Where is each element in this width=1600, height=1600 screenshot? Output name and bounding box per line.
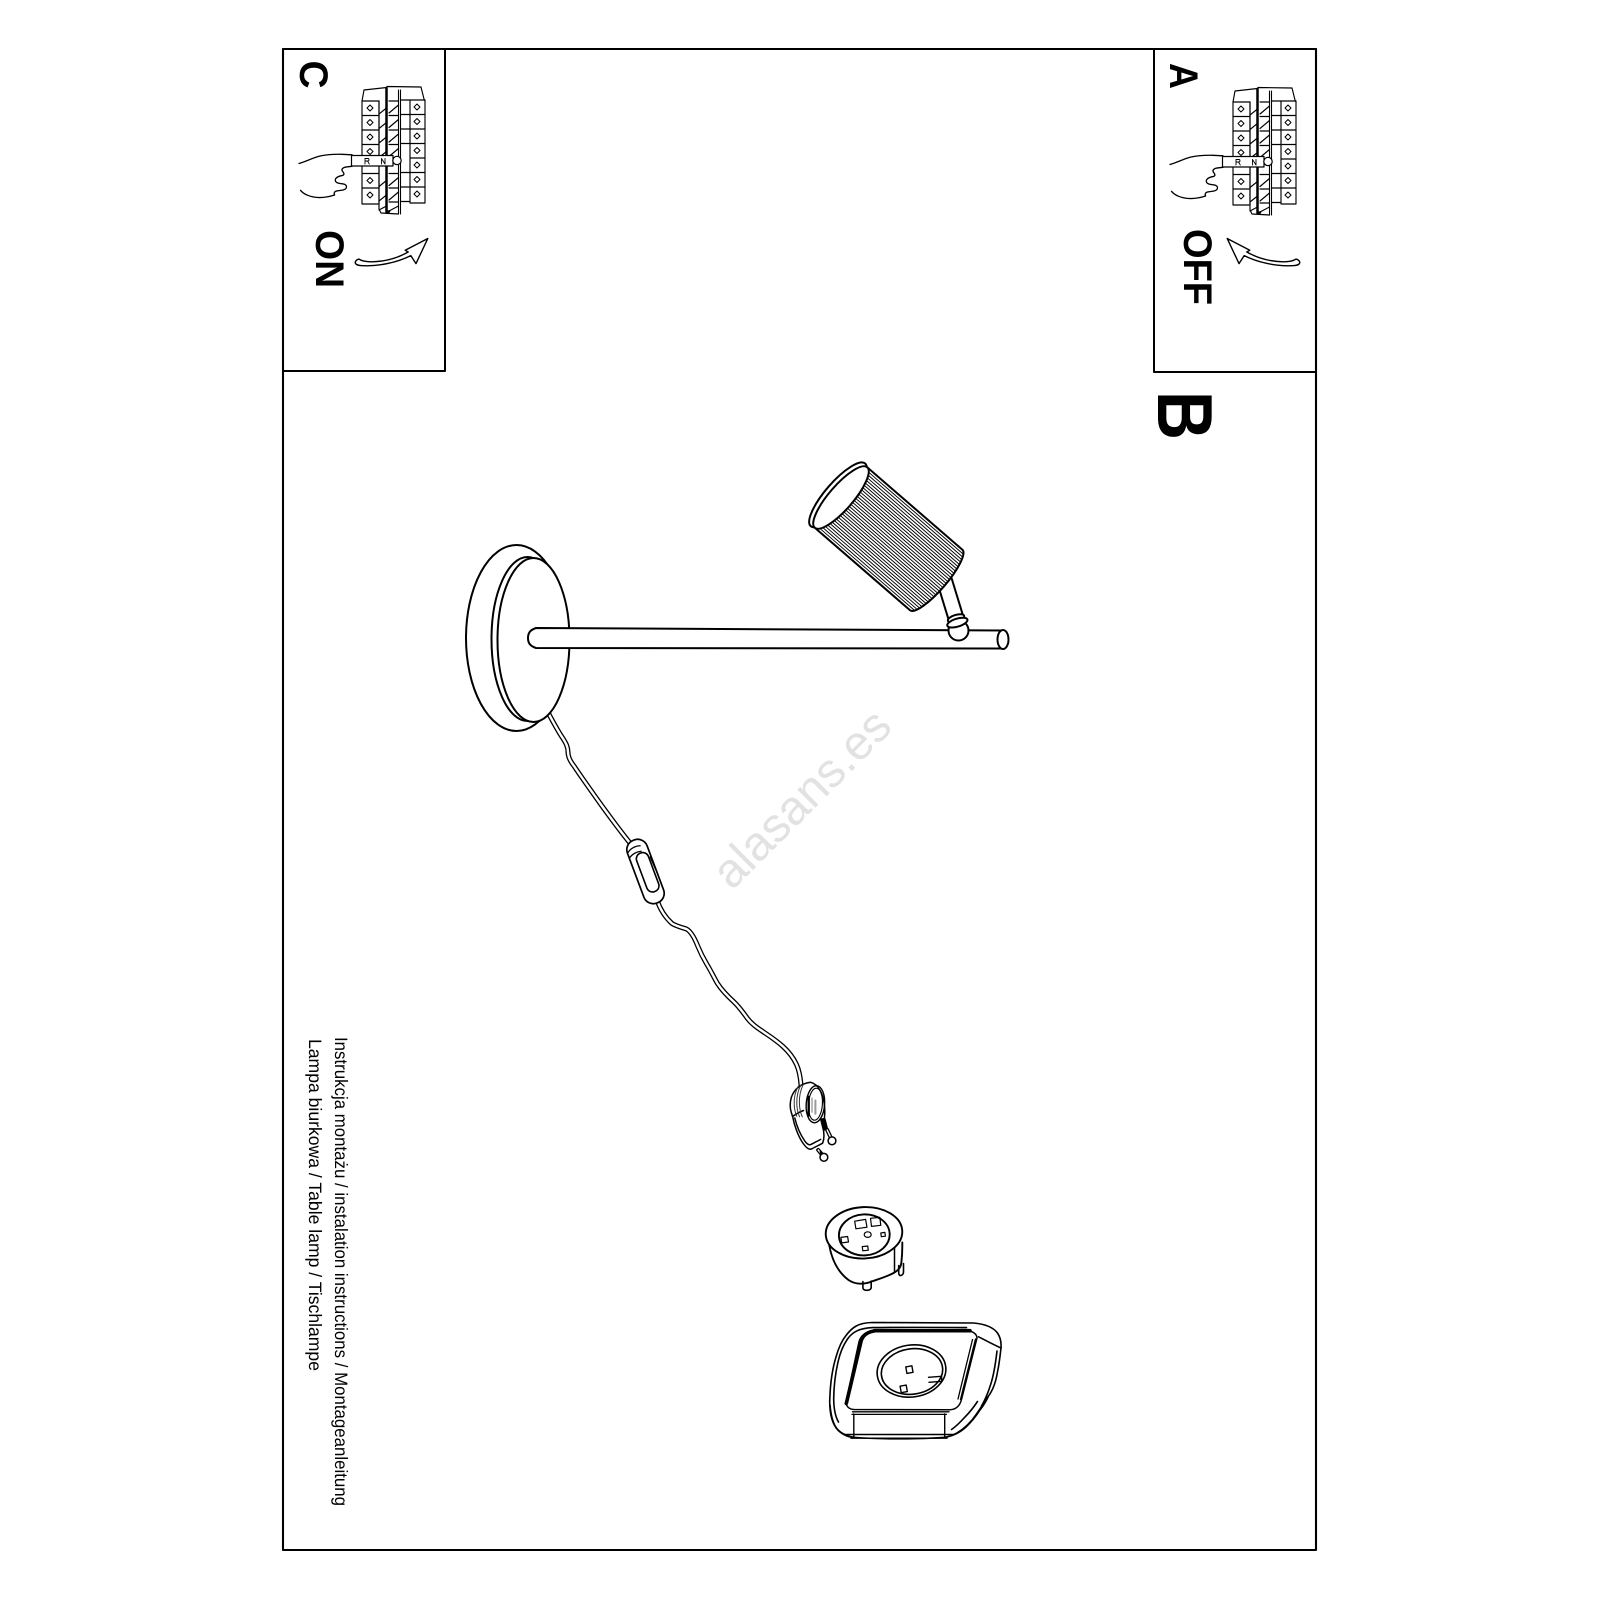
svg-text:C: C	[291, 61, 335, 89]
svg-text:Lampa biurkowa / Table lamp /: Lampa biurkowa / Table lamp / Tischlampe	[305, 1039, 325, 1371]
svg-text:ON: ON	[307, 230, 351, 288]
svg-text:Instrukcja montażu / instalati: Instrukcja montażu / instalation instruc…	[331, 1037, 351, 1506]
svg-text:B: B	[1141, 391, 1229, 440]
svg-text:OFF: OFF	[1175, 229, 1219, 305]
svg-text:A: A	[1161, 63, 1205, 89]
